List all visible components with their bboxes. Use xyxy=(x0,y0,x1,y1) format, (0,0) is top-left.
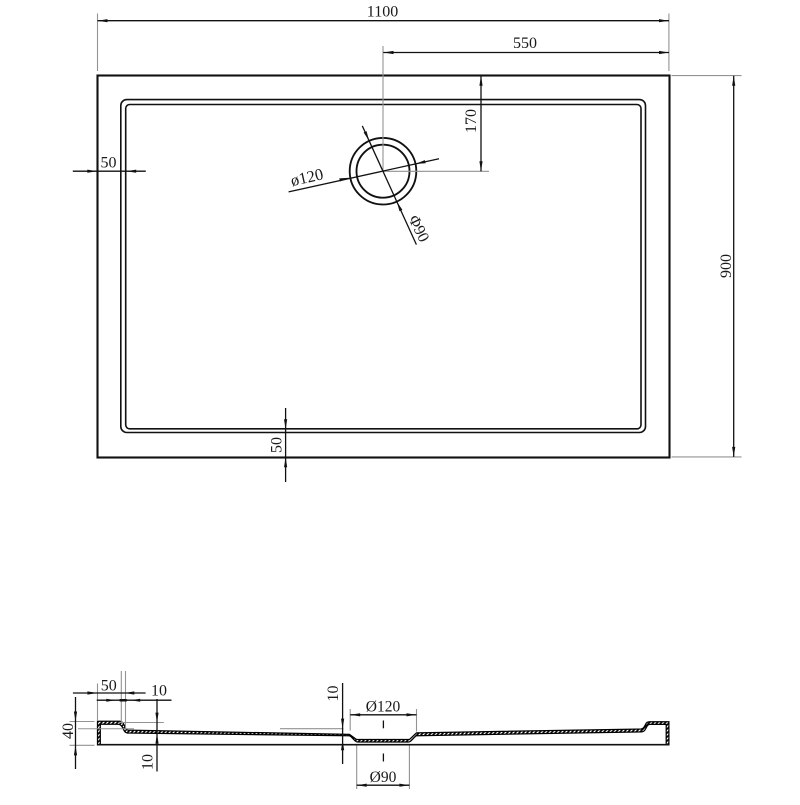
svg-text:550: 550 xyxy=(513,35,537,52)
svg-text:50: 50 xyxy=(269,437,286,453)
svg-text:10: 10 xyxy=(325,686,342,702)
svg-text:Ø90: Ø90 xyxy=(370,769,397,786)
svg-text:1100: 1100 xyxy=(367,4,398,21)
svg-text:10: 10 xyxy=(140,754,157,770)
svg-text:170: 170 xyxy=(463,109,480,133)
svg-text:50: 50 xyxy=(101,678,117,695)
svg-text:50: 50 xyxy=(101,154,117,171)
svg-text:40: 40 xyxy=(60,723,77,739)
svg-text:Ø120: Ø120 xyxy=(366,698,401,715)
svg-text:10: 10 xyxy=(151,683,167,700)
svg-text:ø120: ø120 xyxy=(289,164,325,190)
svg-text:900: 900 xyxy=(718,254,735,278)
